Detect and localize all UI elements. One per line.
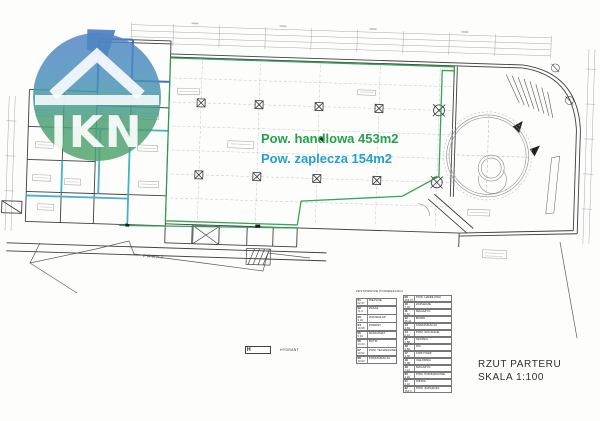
- legend-row-number-area: 055,19: [357, 332, 368, 339]
- legend-row-label: POM. SOCJALNE: [415, 331, 439, 337]
- legend-row-number-area: 173,66: [404, 352, 415, 358]
- legend-row-label: ZAPLECZE: [415, 303, 431, 309]
- legend-row-number-area: 09453,07: [404, 296, 415, 302]
- dimension-lines-top: [131, 21, 552, 58]
- legend-row-number-area: 107,46: [404, 303, 415, 309]
- legend-row-label: PODEST: [368, 323, 381, 330]
- legend-row-label: WEJŚCIE: [368, 299, 382, 306]
- jkn-logo: JKN: [33, 33, 161, 161]
- legend-row-number-area: 0162,37: [357, 299, 368, 306]
- legend-row-number-area: 204,46: [404, 373, 415, 379]
- legend-row-number-area: 22154,0: [404, 387, 415, 393]
- retail-area-label: Pow. handlowa 453m2: [261, 129, 399, 149]
- legend-row-number-area: 0710,52: [357, 348, 368, 355]
- legend-row-label: POM. TECHNICZNE: [368, 348, 396, 355]
- legend-row-number-area: 197,14: [404, 366, 415, 372]
- legend-row-label: BIURO: [415, 317, 425, 323]
- backroom-area-label: Pow. zaplecza 154m2: [261, 149, 399, 169]
- legend-header: ZESTAWIENIE POWIERZCHNI: [356, 289, 452, 293]
- legend-row-number-area: 152,88: [404, 338, 415, 344]
- rotunda: [418, 110, 533, 219]
- legend-row-number-area: 212,10: [404, 380, 415, 386]
- drawing-scale: SKALA 1:100: [478, 371, 561, 384]
- legend-row-number-area: 1225,41: [404, 317, 415, 323]
- legend-row-label: WIATROŁAP: [368, 315, 386, 322]
- legend-row: 22154,0POW. ZAPLECZA: [403, 386, 452, 394]
- title-block: RZUT PARTERU SKALA 1:100: [478, 358, 561, 384]
- hydrant-symbol: H: [247, 347, 251, 353]
- legend-row-number-area: 116,62: [404, 310, 415, 316]
- legend-row-label: POM. PORZĄDKOWE: [415, 373, 445, 379]
- legend-row-label: MAGAZYN: [415, 310, 430, 316]
- legend-row-number-area: 133,84: [404, 324, 415, 330]
- legend-row-number-area: 0419,98: [357, 323, 368, 330]
- legend-row-label: KOMUNIKACJA: [415, 324, 437, 330]
- legend-row-label: BANKOMAT: [368, 332, 385, 339]
- legend-row-label: WC: [415, 345, 421, 351]
- legend-row-number-area: 0624,34: [357, 340, 368, 347]
- legend-table: ZESTAWIENIE POWIERZCHNI 0162,37WEJŚCIE02…: [356, 289, 452, 393]
- legend-column-right: 09453,07POW. HANDLOWA107,46ZAPLECZE116,6…: [403, 295, 452, 393]
- legend-row-number-area: 185,98: [404, 359, 415, 365]
- legend-row: 0819,93KOMUNIKACJA: [356, 356, 397, 365]
- legend-row-label: CHŁODNIA: [415, 359, 431, 365]
- legend-row-number-area: 033,04: [357, 315, 368, 322]
- legend-column-left: 0162,37WEJŚCIE0271,0PASAŻ033,04WIATROŁAP…: [356, 298, 397, 364]
- floorplan-page: JKN Pow. handlowa 453m2 Pow. zaplecza 15…: [0, 0, 600, 421]
- legend-row-label: PASAŻ: [368, 307, 378, 314]
- drawing-title: RZUT PARTERU: [478, 358, 561, 371]
- legend-row-label: KOMUNIKACJA: [368, 357, 390, 364]
- legend-row-number-area: 146,41: [404, 331, 415, 337]
- legend-row-number-area: 0271,0: [357, 307, 368, 314]
- legend-row-label: POW. ZAPLECZA: [415, 387, 439, 393]
- legend-row-number-area: 0819,93: [357, 357, 368, 364]
- legend-row-label: KORYTARZ: [415, 352, 431, 358]
- legend-row-label: BUTIK: [368, 340, 378, 347]
- area-annotations: Pow. handlowa 453m2 Pow. zaplecza 154m2: [261, 129, 399, 169]
- jkn-logo-text: JKN: [33, 111, 161, 155]
- legend-row-number-area: 164,59: [404, 345, 415, 351]
- legend-row-label: MAGAZYN: [415, 366, 430, 372]
- legend-row-label: POW. HANDLOWA: [415, 296, 441, 302]
- hydrant-symbol-box: H: [245, 346, 271, 354]
- legend-row-label: WINDA: [415, 380, 426, 386]
- hydrant-key: H HYDRANT: [245, 346, 299, 354]
- legend-row-label: SZATNIA: [415, 338, 428, 344]
- hydrant-label: HYDRANT: [280, 348, 299, 352]
